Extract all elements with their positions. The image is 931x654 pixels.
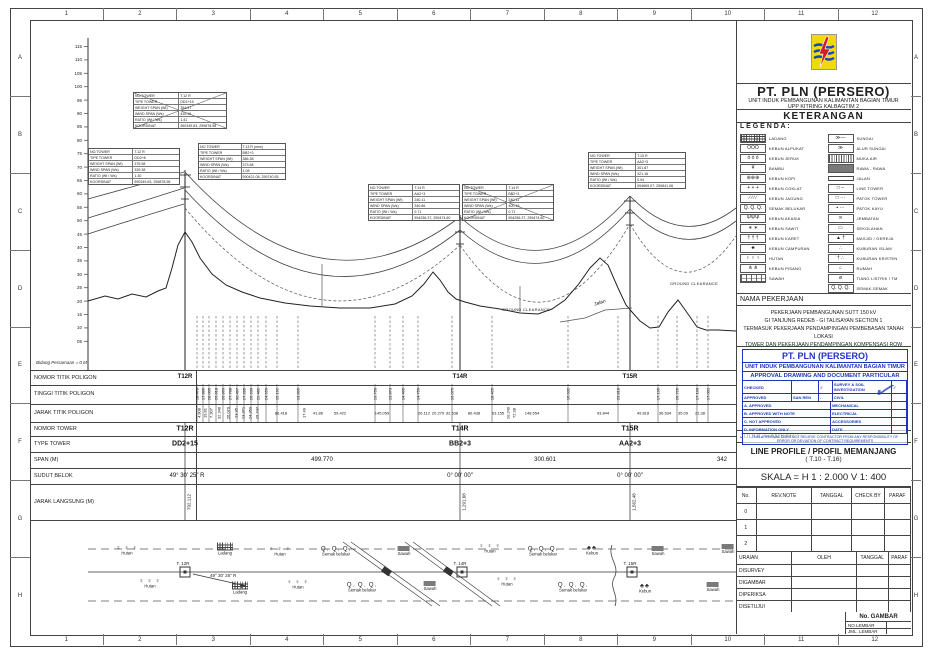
tower-info-value: T.13 R (new) xyxy=(242,144,285,149)
tower-info-value: 0.94 xyxy=(636,177,685,182)
plan-item-sawah: Sawah xyxy=(424,581,437,591)
elevation-tick: 15 xyxy=(68,312,82,317)
tower-info-row: NO.TOWERT.12 R xyxy=(89,149,179,154)
table-value: T12R xyxy=(178,374,193,380)
plan-tower-marker xyxy=(180,567,191,578)
tower-info-row: TIPE TOWERBB2+3 xyxy=(199,149,285,155)
drawing-subtitle: ( T.10 - T.16) xyxy=(736,456,911,463)
legend-item: Q. Q. Q.SEMAK-SEMAK xyxy=(824,283,912,293)
legend-label: KEBUN PISANG xyxy=(769,266,801,271)
table-cell xyxy=(757,520,813,535)
table-value: 32.346 xyxy=(217,407,222,419)
table-cell: DISURVEY xyxy=(736,565,792,576)
tower-info-label: WIND SPAN (Ws) xyxy=(589,171,636,176)
ground-clearance-label: GROUND CLEARANCE xyxy=(502,307,550,312)
patok-kayu-icon: ▪ ··· xyxy=(828,204,854,213)
tower-info-label: NO.TOWER xyxy=(199,144,242,149)
table-value: 342 xyxy=(717,457,727,463)
plan-item-label: Sawah xyxy=(424,587,437,591)
nama-pekerjaan-line: TERMASUK PEKERJAAN PENDAMPINGAN PEMBEBAS… xyxy=(736,325,911,341)
table-value: 26.639 xyxy=(249,388,254,400)
legend-item: JALAN xyxy=(824,173,912,183)
table-value: 18.425 xyxy=(490,388,495,400)
legenda-label: L E G E N D A : xyxy=(736,123,911,133)
tower-info-value: BB2+3 xyxy=(242,150,285,155)
stamp-unit: UNIT INDUK PEMBANGUNAN KALIMANTAN BAGIAN… xyxy=(743,362,907,371)
table-row: DIGAMBAR xyxy=(736,576,911,588)
plan-item-label: Semak belukar xyxy=(528,553,558,557)
legend-label: KUBURAN KRISTEN xyxy=(857,256,898,261)
table-cell: DISETUJUI xyxy=(736,601,792,612)
legend-label: KUBURAN ISLAM xyxy=(857,246,892,251)
plan-item-label: Hutan xyxy=(479,550,501,554)
elevation-tick: 95 xyxy=(68,98,82,103)
plan-item-ladang: Ladang xyxy=(232,582,248,595)
plan-item-label: Semak belukar xyxy=(558,589,588,593)
stamp-cell: - xyxy=(819,394,833,401)
legend-item: ó ó óKEBUN JERUK xyxy=(736,153,824,163)
table-cell xyxy=(792,601,857,612)
table-value: 17.49 xyxy=(302,408,307,418)
table-cell: PARAF xyxy=(885,488,911,503)
legend-item: ≍JEMBATAN xyxy=(824,213,912,223)
plan-item-label: Kebun xyxy=(639,590,651,594)
table-cell xyxy=(852,536,884,551)
table-cell xyxy=(812,536,852,551)
table-value: 1,562.48 xyxy=(632,493,637,511)
table-value: 49.818 xyxy=(637,411,649,416)
stamp-cell: ACCESSORIES xyxy=(831,418,892,425)
gambar-number-block: No. GAMBAR NO.LEMBAR JML. LEMBAR xyxy=(736,612,911,634)
table-cell xyxy=(889,589,911,600)
drawing-sheet: 123456789101112 123456789101112 ABCDEFGH… xyxy=(0,0,931,654)
legend-label: LADANG xyxy=(769,136,787,141)
plan-tower-label: T. 14R xyxy=(453,561,466,566)
table-value: 17.886 xyxy=(201,388,206,400)
no-gambar-header: No. GAMBAR xyxy=(846,612,911,622)
plan-item-label: Sawah xyxy=(707,588,720,592)
nama-pekerjaan-text: PEKERJAAN PEMBANGUNAN SUTT 150 kVGI TANJ… xyxy=(736,306,911,347)
table-value: 32.538 xyxy=(446,411,458,416)
tower-info-value: 240.11 xyxy=(507,197,553,202)
stamp-cell: ELECTRICAL xyxy=(831,410,892,417)
table-value: 27.788 xyxy=(228,388,233,400)
tower-info-row: NO.TOWERT.13 R (new) xyxy=(199,144,285,149)
tower-info-value: T.12 R xyxy=(133,149,179,154)
table-value: 17.001 xyxy=(706,388,711,400)
ladang-symbol xyxy=(217,543,233,551)
tower-info-label: KOORDINAT xyxy=(589,183,636,188)
legend-item: ≫ALUR SUNGAI xyxy=(824,143,912,153)
legend-label: MUKA AIR xyxy=(857,156,878,161)
sekolahan-icon: ▭ xyxy=(828,224,854,233)
table-row-label-text: TINGGI TITIK POLIGON xyxy=(34,391,94,397)
tower-info-label: TIPE TOWER xyxy=(89,155,133,160)
legend-item: MUKA AIR xyxy=(824,153,912,163)
table-cell xyxy=(792,589,857,600)
tower-info-value: 0.71 xyxy=(413,209,459,214)
table-cell xyxy=(757,536,813,551)
tower-info-row: NO.TOWERT.14 R xyxy=(463,185,553,190)
tower-info-row: WIND SPAN (Ws)410.19 xyxy=(134,110,226,116)
stamp-footer: THIS APPROVAL DOES NOT RELIEVE CONTRACTO… xyxy=(743,433,907,444)
masjid-gereja-icon: ▲ † xyxy=(828,234,854,243)
table-cell: DIPERIKSA xyxy=(736,589,792,600)
table-cell xyxy=(885,504,911,519)
stamp-cell: APPROVED xyxy=(743,394,792,401)
table-value: 36.534 xyxy=(659,411,671,416)
elevation-tick: 85 xyxy=(68,124,82,129)
table-value: 23.35 xyxy=(234,408,239,418)
tower-info-row: TIPE TOWERDD2+8 xyxy=(89,154,179,160)
tower-info-row: KOORDINAT590421.08, 259740.55 xyxy=(199,173,285,179)
tower-info-value: 594256.37, 259474.60 xyxy=(413,215,459,220)
table-cell xyxy=(885,520,911,535)
table-value: 4.908 xyxy=(197,408,202,418)
tower-info-row: WIND SPAN (Ws)340.86 xyxy=(369,202,459,208)
table-value: 145.059 xyxy=(375,411,389,416)
tower-info-label: WIND SPAN (Ws) xyxy=(463,203,507,208)
plan-item-label: Sawah xyxy=(398,552,411,556)
table-row-label: NOMOR TITIK POLIGON xyxy=(30,371,197,385)
legend-label: KEBUN KOPI xyxy=(769,176,795,181)
ladang-icon xyxy=(740,134,766,143)
tower-info-label: NO.TOWER xyxy=(463,185,507,190)
stamp-cell xyxy=(892,394,907,401)
elevation-tick: 90 xyxy=(68,111,82,116)
sungai-icon: ≫— xyxy=(828,134,854,143)
tower-info-value: 400.19 xyxy=(507,203,553,208)
table-row-label: TINGGI TITIK POLIGON xyxy=(30,384,197,404)
table-value: 21.38 xyxy=(695,411,705,416)
plan-item-label: Sawah xyxy=(652,552,665,556)
legend-label: KEBUN CAMPURAN xyxy=(769,246,810,251)
table-cell xyxy=(812,504,852,519)
table-value: 10.249 xyxy=(506,407,511,419)
tower-info-row: RATIO (Wt / Ws)0.94 xyxy=(589,176,685,182)
tower-info-label: WIND SPAN (Ws) xyxy=(199,162,242,167)
table-row: 2 xyxy=(736,535,911,551)
drawing-title: LINE PROFILE / PROFIL MEMANJANG xyxy=(736,447,911,456)
tower-info-box: NO.TOWERT.13 R (new)TIPE TOWERBB2+3WEIGH… xyxy=(198,143,286,180)
kebun-akasia-icon: ΨΨΨ xyxy=(740,214,766,223)
tower-info-row: WEIGHT SPAN (Wt)301.87 xyxy=(589,164,685,170)
legend-label: KEBUN JAGUNG xyxy=(769,196,803,201)
table-value: 59.422 xyxy=(334,411,346,416)
table-row: JARAK LANGSUNG (M) xyxy=(30,484,736,521)
tower-info-row: RATIO (Wt / Ws)1.08 xyxy=(199,167,285,173)
ground-clearance-label: GROUND CLEARANCE xyxy=(670,281,718,286)
table-value: 41.86 xyxy=(313,411,323,416)
tower-info-value: DD2+8 xyxy=(133,155,179,160)
plan-angle-label: 49° 30' 25" R xyxy=(210,573,236,578)
approval-stamp: PT. PLN (PERSERO) UNIT INDUK PEMBANGUNAN… xyxy=(742,349,908,445)
table-value: 49° 30' 25" R xyxy=(169,473,204,479)
tower-info-label: NO.TOWER xyxy=(369,185,413,190)
elevation-tick: 110 xyxy=(68,57,82,62)
table-cell: 1 xyxy=(736,520,757,535)
table-value: 26.726 xyxy=(675,388,680,400)
elevation-tick: 10 xyxy=(68,325,82,330)
legend-label: ALUR SUNGAI xyxy=(857,146,886,151)
kebun-coklat-icon: + + + xyxy=(740,184,766,193)
tower-info-value: 590421.08, 259740.55 xyxy=(242,174,285,179)
tower-info-box: NO.TOWERT.14 RTIPE TOWERAA2+3WEIGHT SPAN… xyxy=(368,184,460,221)
table-value: 13.371 xyxy=(241,407,246,419)
table-cell: 2 xyxy=(736,536,757,551)
table-value: 19.81 xyxy=(203,408,208,418)
table-row-label: SPAN (M) xyxy=(30,452,197,468)
legend-item: Q. Q. Q.SEMAK BELUKAR xyxy=(736,203,824,213)
table-cell: URAIAN xyxy=(736,552,792,564)
table-row-label: JARAK TITIK POLIGON xyxy=(30,404,197,422)
tower-info-value: 321.16 xyxy=(636,171,685,176)
tower-info-row: NO.TOWERT.15 R xyxy=(589,153,685,158)
legend-item: † † †KEBUN KARET xyxy=(736,233,824,243)
tower-info-value: 594256.37, 259474.60 xyxy=(507,215,553,220)
legend-section: LADANGOOOKEBUN ALPUKATó ó óKEBUN JERUK¥B… xyxy=(736,133,911,294)
semak-semak-icon: Q. Q. Q. xyxy=(828,284,854,293)
elevation-tick: 65 xyxy=(68,178,82,183)
plan-item-label: Hutan xyxy=(139,585,161,589)
plan-item-sawah: Sawah xyxy=(652,546,665,556)
legend-label: KEBUN SAWIT xyxy=(769,226,799,231)
elevation-tick: 45 xyxy=(68,232,82,237)
legend-item: ∴KUBURAN ISLAM xyxy=(824,243,912,253)
legend-item: LADANG xyxy=(736,133,824,143)
nama-pekerjaan-label: NAMA PEKERJAAN xyxy=(736,294,911,306)
tower-info-value: DD2+15 xyxy=(179,99,226,104)
elevation-tick: 40 xyxy=(68,245,82,250)
rawa-rawa-icon xyxy=(828,164,854,173)
stamp-cell xyxy=(892,426,907,433)
tower-info-value: 0.71 xyxy=(507,209,553,214)
tower-info-label: NO.TOWER xyxy=(89,149,133,154)
plan-item-label: Hutan xyxy=(116,552,138,556)
table-row: TINGGI TITIK POLIGON xyxy=(30,384,736,405)
legend-item: ▲ †MASJID / GEREJA xyxy=(824,233,912,243)
tower-info-value: T.14 R xyxy=(507,185,553,190)
kebun-campuran-icon: ♣ xyxy=(740,244,766,253)
plan-item-label: Hutan xyxy=(269,553,291,557)
tower-info-row: KOORDINAT594669.07, 259841.06 xyxy=(589,182,685,188)
tower-info-value: 339.38 xyxy=(133,167,179,172)
stamp-row: B. APPROVED WITH NOTEELECTRICAL xyxy=(743,409,907,417)
plan-item-trees: ♀ ♀ ♀Hutan xyxy=(479,545,501,554)
tower-info-label: RATIO (Wt / Ws) xyxy=(134,117,179,122)
tower-info-label: KOORDINAT xyxy=(199,174,242,179)
tower-info-row: NO.TOWERT.14 R xyxy=(369,185,459,190)
table-row: DISETUJUI xyxy=(736,600,911,612)
gambar-left-cell xyxy=(736,612,846,634)
table-value: 26.818 xyxy=(214,388,219,400)
table-value: 16.075 xyxy=(450,388,455,400)
kebun-karet-icon: † † † xyxy=(740,234,766,243)
table-cell xyxy=(852,520,884,535)
table-row: 0 xyxy=(736,503,911,519)
table-row: URAIANOLEHTANGGALPARAF xyxy=(736,551,911,564)
legend-item: ≫—SUNGAI xyxy=(824,133,912,143)
table-value: 13.750 xyxy=(373,388,378,400)
legend-item: □ ···PATOK TOWER xyxy=(824,193,912,203)
tower-info-label: RATIO (Wt / Ws) xyxy=(89,173,133,178)
jembatan-icon: ≍ xyxy=(828,214,854,223)
table-value: 17.190 xyxy=(695,388,700,400)
tower-info-row: KOORDINAT590349.63, 259878.98 xyxy=(89,178,179,184)
table-cell: DIGAMBAR xyxy=(736,577,792,588)
table-row-label: NOMOR TOWER xyxy=(30,422,197,436)
tower-info-label: NO.TOWER xyxy=(589,153,636,158)
table-row-label-text: NOMOR TOWER xyxy=(34,426,77,432)
plan-item-label: Kebun xyxy=(586,552,598,556)
table-cell: TANGGAL xyxy=(857,552,889,564)
legend-label: MASJID / GEREJA xyxy=(857,236,894,241)
tower-info-label: TIPE TOWER xyxy=(199,150,242,155)
table-value: BB2+3 xyxy=(449,441,471,448)
tower-info-label: WEIGHT SPAN (Wt) xyxy=(199,156,242,161)
tower-info-value: 386.38 xyxy=(242,156,285,161)
table-cell xyxy=(757,504,813,519)
elevation-tick: 80 xyxy=(68,138,82,143)
legend-item: ΨΨΨKEBUN AKASIA xyxy=(736,213,824,223)
plan-item-label: Hutan xyxy=(496,583,518,587)
table-value: T14R xyxy=(451,426,468,433)
legend-item: øTIANG LISTRIK / TM xyxy=(824,273,912,283)
table-value: 26.079 xyxy=(226,407,231,419)
legend-label: SEMAK BELUKAR xyxy=(769,206,805,211)
tower-info-box: NO.TOWERT.14 RTIPE TOWERBB2+3WEIGHT SPAN… xyxy=(462,184,554,221)
legend-label: KEBUN COKLAT xyxy=(769,186,802,191)
kebun-alpukat-icon: OOO xyxy=(740,144,766,153)
tower-info-label: KOORDINAT xyxy=(369,215,413,220)
stamp-row: D. INFORMATION ONLYDATE xyxy=(743,425,907,433)
tower-info-row: RATIO (Wt / Ws)0.71 xyxy=(463,208,553,214)
stamp-cell xyxy=(892,402,907,409)
plan-item-label: Ladang xyxy=(232,591,248,595)
tower-info-row: KOORDINAT594256.37, 259474.60 xyxy=(369,214,459,220)
plan-item-trees: ♀ ♀ ♀Hutan xyxy=(287,581,309,590)
plan-item-label: Hutan xyxy=(287,586,309,590)
tower-info-value: 590349.63, 259878.98 xyxy=(133,179,179,184)
kebun-jeruk-icon: ó ó ó xyxy=(740,154,766,163)
tower-info-value: 590349.63, 259878.98 xyxy=(179,123,226,128)
nama-pekerjaan-line: GI TANJUNG REDEB - GI TALISAYAN SECTION … xyxy=(736,317,911,325)
logo-section xyxy=(736,20,911,84)
legend-label: SEKOLAHAN xyxy=(857,226,883,231)
tower-info-value: T.15 R xyxy=(636,153,685,158)
table-row: SPAN (M) xyxy=(30,452,736,469)
plan-item-semak: Q. Q. Q.Semak belukar xyxy=(321,548,351,557)
table-value: 1,291.68 xyxy=(462,493,467,511)
tower-info-value: 1.30 xyxy=(133,173,179,178)
plan-tower-dot xyxy=(461,571,464,574)
tower-info-row: TIPE TOWERAA2+3 xyxy=(369,190,459,196)
plan-item-sawah: Sawah xyxy=(398,546,411,556)
table-value: T14R xyxy=(453,374,468,380)
legend-label: BAMBU xyxy=(769,166,784,171)
elevation-tick: 05 xyxy=(68,339,82,344)
table-value: T12R xyxy=(176,426,193,433)
legend-label: SUNGAI xyxy=(857,136,874,141)
tower-info-label: RATIO (Wt / Ws) xyxy=(199,168,242,173)
plan-tower-label: T. 12R xyxy=(176,561,189,566)
tower-info-value: AA2+3 xyxy=(413,191,459,196)
kebun-sawit-icon: ∗ ∗ xyxy=(740,224,766,233)
legend-label: KEBUN KARET xyxy=(769,236,799,241)
tower-info-row: TIPE TOWERAA2+3 xyxy=(589,158,685,164)
tower-info-row: WEIGHT SPAN (Wt)375.98 xyxy=(89,160,179,166)
plan-item-label: Ladang xyxy=(217,552,233,556)
legend-item: ⌂RUMAH xyxy=(824,263,912,273)
table-row-label-text: TYPE TOWER xyxy=(34,441,70,447)
tower-info-row: WEIGHT SPAN (Wt)394.97 xyxy=(134,104,226,110)
legend-label: PATOK TOWER xyxy=(857,196,888,201)
stamp-cell: B. APPROVED WITH NOTE xyxy=(743,410,831,417)
table-row: 1 xyxy=(736,519,911,535)
tower-info-row: KOORDINAT594256.37, 259474.60 xyxy=(463,214,553,220)
lembar-divider-h xyxy=(846,628,911,629)
table-row: DISURVEY xyxy=(736,564,911,576)
signature-table: URAIANOLEHTANGGALPARAFDISURVEYDIGAMBARDI… xyxy=(736,551,911,612)
tower-info-value: 375.98 xyxy=(133,161,179,166)
elevation-tick: 70 xyxy=(68,165,82,170)
tower-info-label: WIND SPAN (Ws) xyxy=(369,203,413,208)
plan-tower-dot xyxy=(184,571,187,574)
tower-info-row: RATIO (Wt / Ws)1.30 xyxy=(89,172,179,178)
tower-info-row: WEIGHT SPAN (Wt)240.11 xyxy=(463,196,553,202)
tower-info-box: NO.TOWERT.12 RTIPE TOWERDD2+8WEIGHT SPAN… xyxy=(88,148,180,185)
table-value: 35.09 xyxy=(678,411,688,416)
tower-info-row: WIND SPAN (Ws)339.38 xyxy=(89,166,179,172)
table-value: 14.495 xyxy=(401,388,406,400)
table-value: 13.873 xyxy=(388,388,393,400)
legend-label: KEBUN JERUK xyxy=(769,156,799,161)
table-cell: PARAF xyxy=(889,552,911,564)
table-value: T15R xyxy=(621,426,638,433)
stamp-cell: DATE xyxy=(831,426,892,433)
kuburan-islam-icon: ∴ xyxy=(828,244,854,253)
legend-item: RAWA - RAWA xyxy=(824,163,912,173)
legend-item: ¥BAMBU xyxy=(736,163,824,173)
legend-item: † ∴KUBURAN KRISTEN xyxy=(824,253,912,263)
table-cell xyxy=(885,536,911,551)
revision-table: No.REV.NOTETANGGALCHECK BYPARAF012 xyxy=(736,487,911,551)
tower-info-row: RATIO (Wt / Ws)0.71 xyxy=(369,208,459,214)
table-cell: CHECK BY xyxy=(852,488,884,503)
legend-item: ♣KEBUN CAMPURAN xyxy=(736,243,824,253)
legend-label: PATOK KAYU xyxy=(857,206,884,211)
kebun-kopi-icon: ⊕⊕⊕ xyxy=(740,174,766,183)
legend-item: ∗ ∗KEBUN SAWIT xyxy=(736,223,824,233)
table-cell xyxy=(857,577,889,588)
table-value: 499.770 xyxy=(311,457,333,463)
tower-info-value: 594669.07, 259841.06 xyxy=(636,183,685,188)
table-cell xyxy=(889,565,911,576)
table-cell: No. xyxy=(736,488,757,503)
legend-item: ∕ ∕ ∕ ∕KEBUN JAGUNG xyxy=(736,193,824,203)
tower-info-row: RATIO (Wt / Ws)1.41 xyxy=(134,116,226,122)
table-value: 30.497 xyxy=(235,388,240,400)
table-value: AA2+3 xyxy=(619,441,641,448)
legend-label: HUTAN xyxy=(769,256,783,261)
bidang-persamaan-label: Bidang Persamaan = 0 M xyxy=(36,360,87,365)
tower-info-row: NO.TOWERT.12 R xyxy=(134,93,226,98)
table-value: DD2+15 xyxy=(172,441,198,448)
skala-row: SKALA = H 1 : 2.000 V 1: 400 xyxy=(736,469,911,487)
table-value: 0° 00' 00" xyxy=(447,473,473,479)
table-value: 20.279 xyxy=(432,411,444,416)
legend-label: SEMAK-SEMAK xyxy=(857,286,889,291)
